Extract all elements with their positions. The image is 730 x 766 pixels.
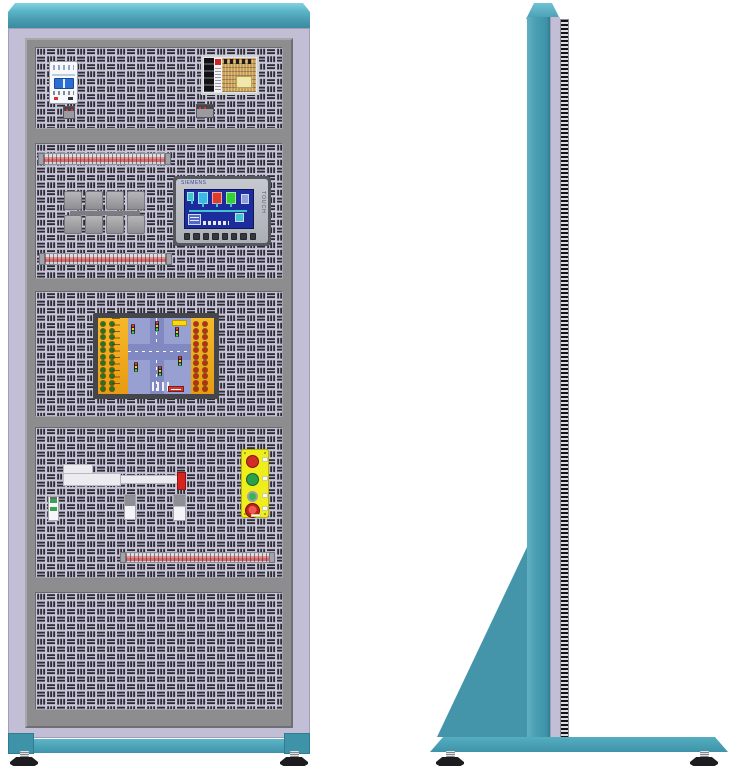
hmi-touchscreen[interactable] [184,189,254,229]
button-label [262,476,268,481]
connection-point[interactable] [101,361,105,365]
foot-pad [280,757,308,766]
psu-circuit-board [222,58,256,92]
traffic-signal [175,327,179,337]
hmi-function-key[interactable] [240,233,246,240]
foot-pad [10,757,38,766]
panel-section-4 [35,427,283,578]
screen-pipe [189,210,247,212]
psu-logo [215,59,221,65]
traffic-right-dots [191,318,214,394]
front-view: SIEMENS TOUCH [8,3,310,766]
hmi-function-keys [184,233,256,240]
connection-point[interactable] [194,361,198,365]
connection-point[interactable] [203,374,207,378]
connection-point[interactable] [101,374,105,378]
hmi-function-key[interactable] [184,233,190,240]
base-trim [8,739,310,753]
perforated-panel-texture [36,593,282,709]
foot-pad [436,757,464,766]
panel-section-2: SIEMENS TOUCH [35,143,283,279]
connection-point[interactable] [203,355,207,359]
foot-pad [690,757,718,766]
position-sensor [124,494,136,520]
slide-carriage[interactable] [63,473,121,486]
power-supply [201,55,259,95]
foot-stem [290,751,299,757]
traffic-signal [131,324,135,334]
connection-point[interactable] [101,368,105,372]
button-label [262,457,268,462]
screw [264,513,266,515]
pushbutton-station [241,449,269,518]
connection-point[interactable] [101,335,105,339]
connection-point[interactable] [101,322,105,326]
connection-point[interactable] [203,322,207,326]
green-pushbutton[interactable] [246,473,259,486]
relay [85,215,103,234]
screen-button-row[interactable] [203,221,229,225]
hmi-touch-label: TOUCH [260,191,266,214]
connection-point[interactable] [203,348,207,352]
connection-point[interactable] [194,348,198,352]
hmi-function-key[interactable] [231,233,237,240]
terminal-strip [121,552,274,563]
cabinet-top-cap [8,3,310,28]
breaker-terminal [68,97,73,100]
panel-section-5 [35,592,283,710]
hmi-bezel: SIEMENS TOUCH [176,179,268,243]
screen-small-tank [235,213,244,222]
foot-stem [20,751,29,757]
screen-tank-small [187,192,194,201]
side-view [430,3,730,766]
breaker-divider [52,74,75,76]
drawing-canvas: SIEMENS TOUCH [0,0,730,766]
screen-tank-red [212,192,222,204]
breaker-rating-text [53,91,74,95]
screw [244,513,246,515]
connection-point[interactable] [203,368,207,372]
traffic-trainer-board [93,313,219,399]
slide-end-stop [177,472,186,490]
button-label [262,493,268,498]
position-sensor [173,494,186,521]
connection-point[interactable] [194,329,198,333]
connection-point[interactable] [203,335,207,339]
panel-section-3 [35,291,283,417]
connection-point[interactable] [194,355,198,359]
leveling-foot [10,751,38,766]
leveling-foot [436,751,464,766]
connection-point[interactable] [203,387,207,391]
hmi-function-key[interactable] [222,233,228,240]
traffic-signal [134,362,138,372]
side-panel-teeth [560,19,569,740]
traffic-signal [158,366,162,376]
screw [244,452,246,454]
red-pushbutton[interactable] [246,455,259,468]
connection-point[interactable] [203,381,207,385]
relay [64,191,82,210]
psu-terminal-row [204,58,214,92]
connection-point[interactable] [203,342,207,346]
button-label [262,506,268,511]
foot-stem [700,751,709,757]
hmi-function-key[interactable] [203,233,209,240]
connection-point[interactable] [203,361,207,365]
traffic-signal [178,356,182,366]
connection-point[interactable] [110,387,114,391]
connection-point[interactable] [194,342,198,346]
yellow-label-bar [172,320,187,326]
leveling-foot [690,751,718,766]
hmi-function-key[interactable] [250,233,256,240]
leveling-foot [280,751,308,766]
connection-point[interactable] [194,387,198,391]
relay [106,191,124,210]
connection-point[interactable] [101,387,105,391]
relay [127,191,145,210]
panel-section-1 [35,47,283,129]
hmi-brand-text: SIEMENS [181,180,206,186]
side-base-plate [430,737,728,752]
screen-tank-blue [198,192,208,204]
connection-point[interactable] [194,381,198,385]
connection-point[interactable] [194,368,198,372]
relay [85,191,103,210]
terminal-block [196,104,214,118]
psu-transformer [236,76,252,88]
terminal-block [63,106,75,119]
foot-stem [446,751,455,757]
connection-point[interactable] [101,342,105,346]
hmi-panel: SIEMENS TOUCH [173,176,271,246]
relay-group [64,191,146,235]
relay [64,215,82,234]
terminal-strip [40,253,171,265]
breaker-markings [53,65,74,70]
connection-point[interactable] [194,374,198,378]
hmi-function-key[interactable] [193,233,199,240]
sensor-module [48,496,59,521]
connection-point[interactable] [101,329,105,333]
side-column [527,17,550,740]
terminal-strip [39,153,170,165]
breaker-toggle[interactable] [54,78,74,89]
connection-point[interactable] [203,329,207,333]
psu-label [214,58,222,92]
connection-point[interactable] [101,355,105,359]
traffic-intersection-graphic [128,318,191,394]
psu-capacitor-row [224,59,254,64]
board-red-label [168,386,184,392]
breaker-test-button[interactable] [54,97,58,100]
support-gusset [437,547,527,737]
connection-point[interactable] [194,335,198,339]
traffic-signal [155,321,159,331]
traffic-left-labels [112,318,120,386]
screw [264,452,266,454]
side-panel-edge [550,17,560,740]
connection-point[interactable] [194,322,198,326]
screen-unit [241,194,249,204]
connection-point[interactable] [101,381,105,385]
screen-vessel [188,214,201,225]
hmi-function-key[interactable] [212,233,218,240]
screen-tank-green [226,192,236,204]
relay [127,215,145,234]
connection-point[interactable] [101,348,105,352]
circuit-breaker[interactable] [49,61,78,104]
green-indicator-lamp [247,491,258,502]
station-label [251,514,261,517]
slide-rail [120,475,178,484]
relay [106,215,124,234]
